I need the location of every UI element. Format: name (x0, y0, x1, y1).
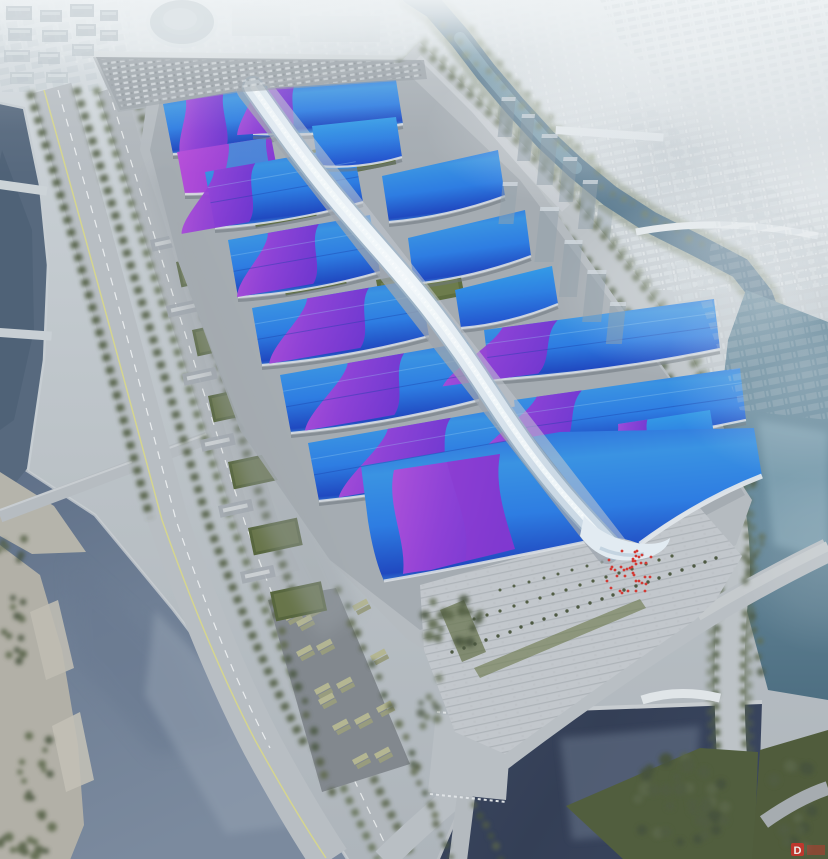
svg-text:D: D (794, 845, 802, 857)
